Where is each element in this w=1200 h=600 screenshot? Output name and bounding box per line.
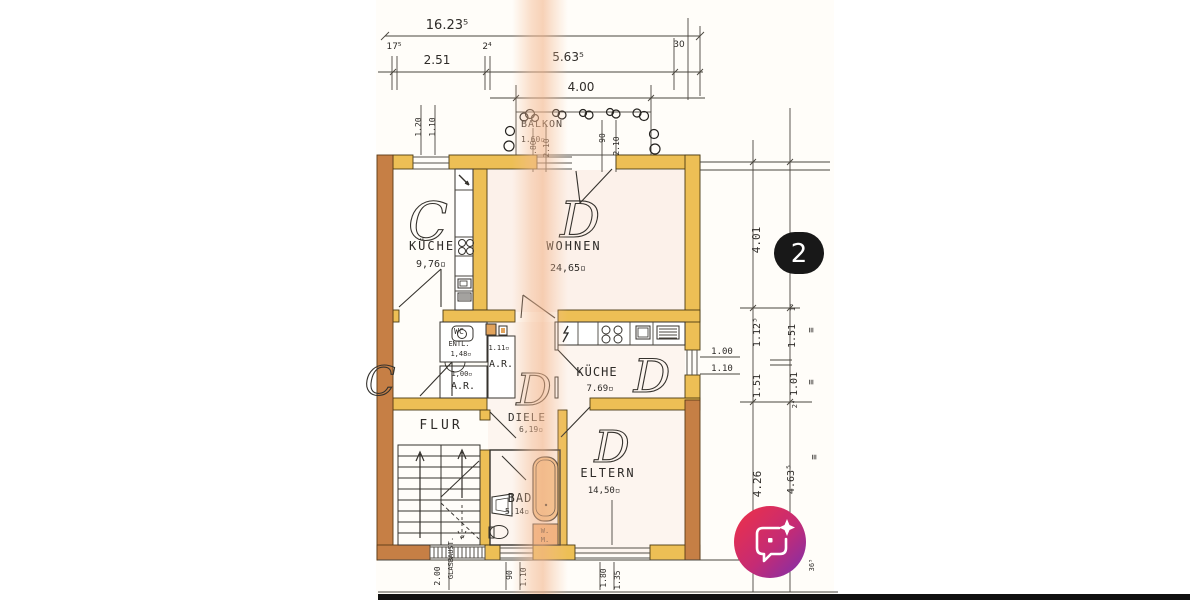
dim-2-51: 2.51 <box>424 53 451 67</box>
rdim-4-01: 4.01 <box>750 227 763 254</box>
scan-fold-stripe <box>512 0 568 600</box>
room-area-eltern: 14,50▫ <box>588 486 621 496</box>
rdim-eq-3: ≡ <box>810 454 820 460</box>
rdim-eq-2: ≡ <box>807 379 817 385</box>
room-area-wc: 1,48▫ <box>450 350 471 358</box>
window-left-dim-w: 1.20 <box>414 117 423 136</box>
bdim-2-00: 2.00 <box>433 566 442 585</box>
dim-4-00: 4.00 <box>568 80 595 94</box>
balcony-dim-4: 2.10 <box>612 136 621 155</box>
bdim-1-35: 1.35 <box>613 570 622 589</box>
rdim-36-5: 36⁵ <box>808 559 816 572</box>
balcony-dim-3: 90 <box>598 133 607 143</box>
room-area-kueche-c: 9,76▫ <box>416 259 446 270</box>
floorplan-drawing: 16.23⁵ 17⁵ 2.51 2⁴ 5.63⁵ 30 4.00 <box>0 0 1200 600</box>
rdim-1-12: 1.12⁵ <box>752 317 763 347</box>
screenshot-stage: 16.23⁵ 17⁵ 2.51 2⁴ 5.63⁵ 30 4.00 <box>0 0 1200 600</box>
rdim-1-51-a: 1.51 <box>752 374 763 398</box>
room-label-entl: ENTL. <box>448 340 469 348</box>
apartment-letter-d-kueche: D <box>633 349 671 403</box>
rdim-4-26: 4.26 <box>751 471 764 498</box>
neighbor-letter-c: C <box>365 359 396 405</box>
room-label-kueche-c: KÜCHE <box>409 237 455 253</box>
room-area-ar-left: 1,00▫ <box>451 370 472 378</box>
kueche-d-window-dim-1: 1.00 <box>711 347 733 357</box>
window-left-dim-h: 1.10 <box>428 117 437 136</box>
room-label-flur: FLUR <box>419 418 462 433</box>
fab-button[interactable] <box>734 506 806 578</box>
rdim-4-63: 4.63⁵ <box>786 464 797 494</box>
dim-2-4: 2⁴ <box>482 42 492 52</box>
rdim-1-01: 1.01 <box>789 372 800 396</box>
bdim-glasbaust: GLASBAUST. <box>447 537 455 579</box>
room-label-ar-top: A.R. <box>489 359 513 370</box>
room-label-kueche-d: KÜCHE <box>576 363 617 379</box>
room-area-kueche-d: 7.69▫ <box>586 384 613 394</box>
rdim-2-4: 2⁴ <box>791 400 799 408</box>
kueche-d-window-dim-2: 1.10 <box>711 364 733 374</box>
rdim-eq-1: ≡ <box>807 327 817 333</box>
room-label-ar-left: A.R. <box>451 381 475 392</box>
bdim-1-80: 1.80 <box>599 568 608 587</box>
room-label-wc: WC <box>454 327 464 336</box>
kitchen-d-counter <box>558 322 685 345</box>
photo-count-label: 2 <box>791 239 808 269</box>
room-area-ar-top: 1.11▫ <box>488 344 509 352</box>
rdim-1-51-b: 1.51 <box>787 324 798 348</box>
glass-block-wall <box>430 547 485 558</box>
dim-30: 30 <box>673 40 685 50</box>
rdim-1-5: 1⁵ <box>789 303 797 311</box>
dim-total: 16.23⁵ <box>426 18 468 33</box>
room-label-eltern: ELTERN <box>580 466 635 480</box>
dim-17-5: 17⁵ <box>386 42 401 52</box>
scan-edge-band <box>378 594 1190 600</box>
photo-count-badge: 2 <box>774 232 824 274</box>
kitchen-c-counter <box>455 169 474 310</box>
